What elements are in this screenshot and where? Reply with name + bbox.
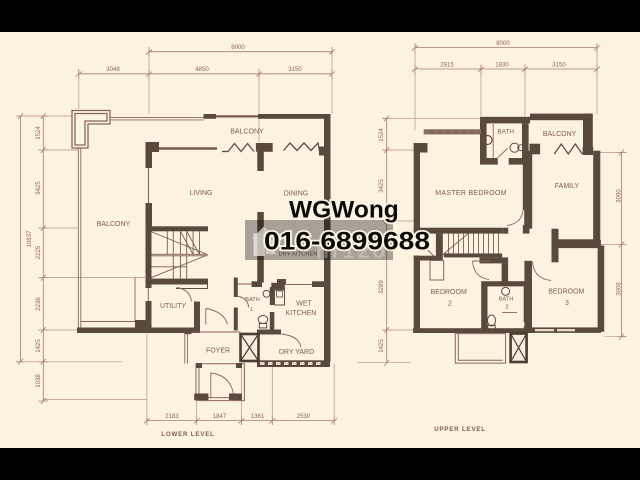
svg-text:BATH: BATH <box>497 129 514 136</box>
svg-text:1524: 1524 <box>35 126 42 140</box>
svg-text:KITCHEN: KITCHEN <box>286 310 317 317</box>
svg-text:FAMILY: FAMILY <box>555 183 580 190</box>
svg-text:3150: 3150 <box>288 66 302 73</box>
svg-text:3090: 3090 <box>616 189 623 203</box>
svg-text:2: 2 <box>505 305 508 311</box>
svg-text:DRY YARD: DRY YARD <box>279 349 314 356</box>
svg-text:1361: 1361 <box>251 413 265 420</box>
svg-text:3: 3 <box>565 300 569 307</box>
svg-text:BEDROOM: BEDROOM <box>548 289 584 296</box>
svg-text:BATH: BATH <box>245 297 260 303</box>
svg-text:LOWER LEVEL: LOWER LEVEL <box>161 431 215 438</box>
svg-text:BALCONY: BALCONY <box>97 221 131 228</box>
svg-text:1425: 1425 <box>35 339 42 353</box>
svg-text:WET: WET <box>296 301 312 308</box>
svg-text:3289: 3289 <box>378 280 385 294</box>
svg-text:4850: 4850 <box>195 66 209 73</box>
svg-text:3008: 3008 <box>616 282 623 296</box>
svg-text:3425: 3425 <box>35 181 42 195</box>
svg-text:1524: 1524 <box>378 128 385 142</box>
svg-text:2225: 2225 <box>35 245 42 259</box>
svg-text:LIVING: LIVING <box>190 190 213 197</box>
svg-text:FOYER: FOYER <box>206 348 230 355</box>
svg-text:2183: 2183 <box>165 413 179 420</box>
svg-text:8000: 8000 <box>231 44 245 51</box>
svg-text:1038: 1038 <box>35 374 42 388</box>
svg-text:BATH: BATH <box>499 297 514 303</box>
svg-text:8000: 8000 <box>496 40 510 47</box>
svg-text:3048: 3048 <box>106 66 120 73</box>
svg-text:UPPER LEVEL: UPPER LEVEL <box>434 426 486 433</box>
svg-text:WGWong: WGWong <box>289 197 399 224</box>
svg-text:1425: 1425 <box>378 339 385 353</box>
svg-text:MASTER BEDROOM: MASTER BEDROOM <box>435 190 506 197</box>
svg-text:BALCONY: BALCONY <box>543 131 577 138</box>
svg-text:1: 1 <box>250 307 253 313</box>
svg-text:3425: 3425 <box>378 179 385 193</box>
svg-text:016-6899688: 016-6899688 <box>264 228 430 256</box>
svg-text:BALCONY: BALCONY <box>230 129 264 136</box>
svg-text:10837: 10837 <box>26 230 33 248</box>
svg-text:2915: 2915 <box>440 61 454 68</box>
svg-text:1830: 1830 <box>495 61 509 68</box>
svg-text:UTILITY: UTILITY <box>160 303 186 310</box>
svg-text:3150: 3150 <box>552 61 566 68</box>
svg-text:1847: 1847 <box>213 413 227 420</box>
svg-text:BEDROOM: BEDROOM <box>431 289 467 296</box>
svg-text:2: 2 <box>448 301 452 308</box>
svg-text:2236: 2236 <box>35 297 42 311</box>
svg-text:2530: 2530 <box>297 413 311 420</box>
